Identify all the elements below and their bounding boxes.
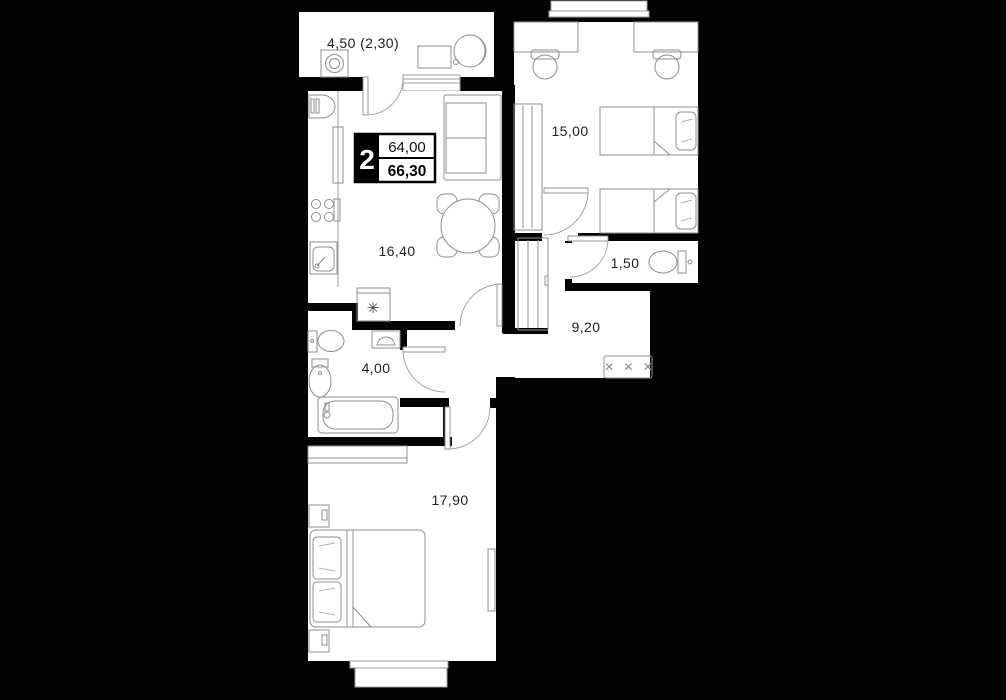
bedroom-bottom-area-label: 17,90 — [431, 492, 468, 508]
wall-left-outer — [296, 78, 308, 690]
balcony-area-label: 4,50 (2,30) — [327, 35, 399, 51]
bathroom-area-label: 4,00 — [362, 360, 391, 376]
bedroom-top-area-label: 15,00 — [551, 123, 588, 139]
bedroom-bottom-doorway — [449, 398, 496, 444]
badge-living-area: 66,30 — [388, 163, 427, 180]
bedroom-bottom-floor — [308, 444, 496, 661]
wc-door-leaf — [568, 236, 608, 241]
hallway-upper-floor — [515, 241, 565, 291]
living-door-leaf — [497, 284, 502, 326]
floor-plan-canvas: 4,50 (2,30) ✳ — [0, 0, 1006, 700]
bathroom-door-leaf — [403, 347, 445, 352]
balcony-door-gap — [365, 75, 403, 91]
floor-plan: 4,50 (2,30) ✳ — [0, 0, 1006, 700]
bedroom-top-door-leaf — [544, 188, 588, 193]
wc-area-label: 1,50 — [611, 255, 640, 271]
wall-bedroom-bottom-right — [496, 377, 514, 661]
wall-under-wardrobe — [503, 328, 548, 334]
wall-corridor-bedroom — [400, 398, 449, 407]
bedroom-top-window-sill — [549, 11, 649, 17]
bedroom-bottom-window-sill — [350, 661, 448, 668]
wc-door-gap — [565, 243, 572, 279]
kitchen-living-area-label: 16,40 — [378, 243, 415, 259]
unit-info-badge: 2 64,00 66,30 — [355, 134, 435, 182]
passage-gap — [502, 333, 515, 377]
wall-living-bottom — [352, 321, 455, 330]
wall-kitchen-bathroom — [296, 303, 358, 311]
hallway-area-label: 9,20 — [572, 319, 601, 335]
balcony-door-leaf — [363, 77, 368, 115]
wall-living-hallway — [502, 85, 515, 333]
badge-rooms-count: 2 — [359, 144, 375, 175]
fridge-snowflake-icon: ✳ — [367, 300, 380, 317]
bedroom-bottom-window — [355, 668, 447, 687]
dining-table — [441, 199, 495, 253]
bedroom-bottom-door-leaf — [445, 407, 450, 449]
wall-bathroom-bottom — [296, 437, 452, 446]
bedroom-top-window — [551, 1, 647, 11]
hanger-crosses-icon: ✕ ✕ ✕ — [604, 360, 656, 374]
badge-total-area: 64,00 — [388, 139, 426, 156]
